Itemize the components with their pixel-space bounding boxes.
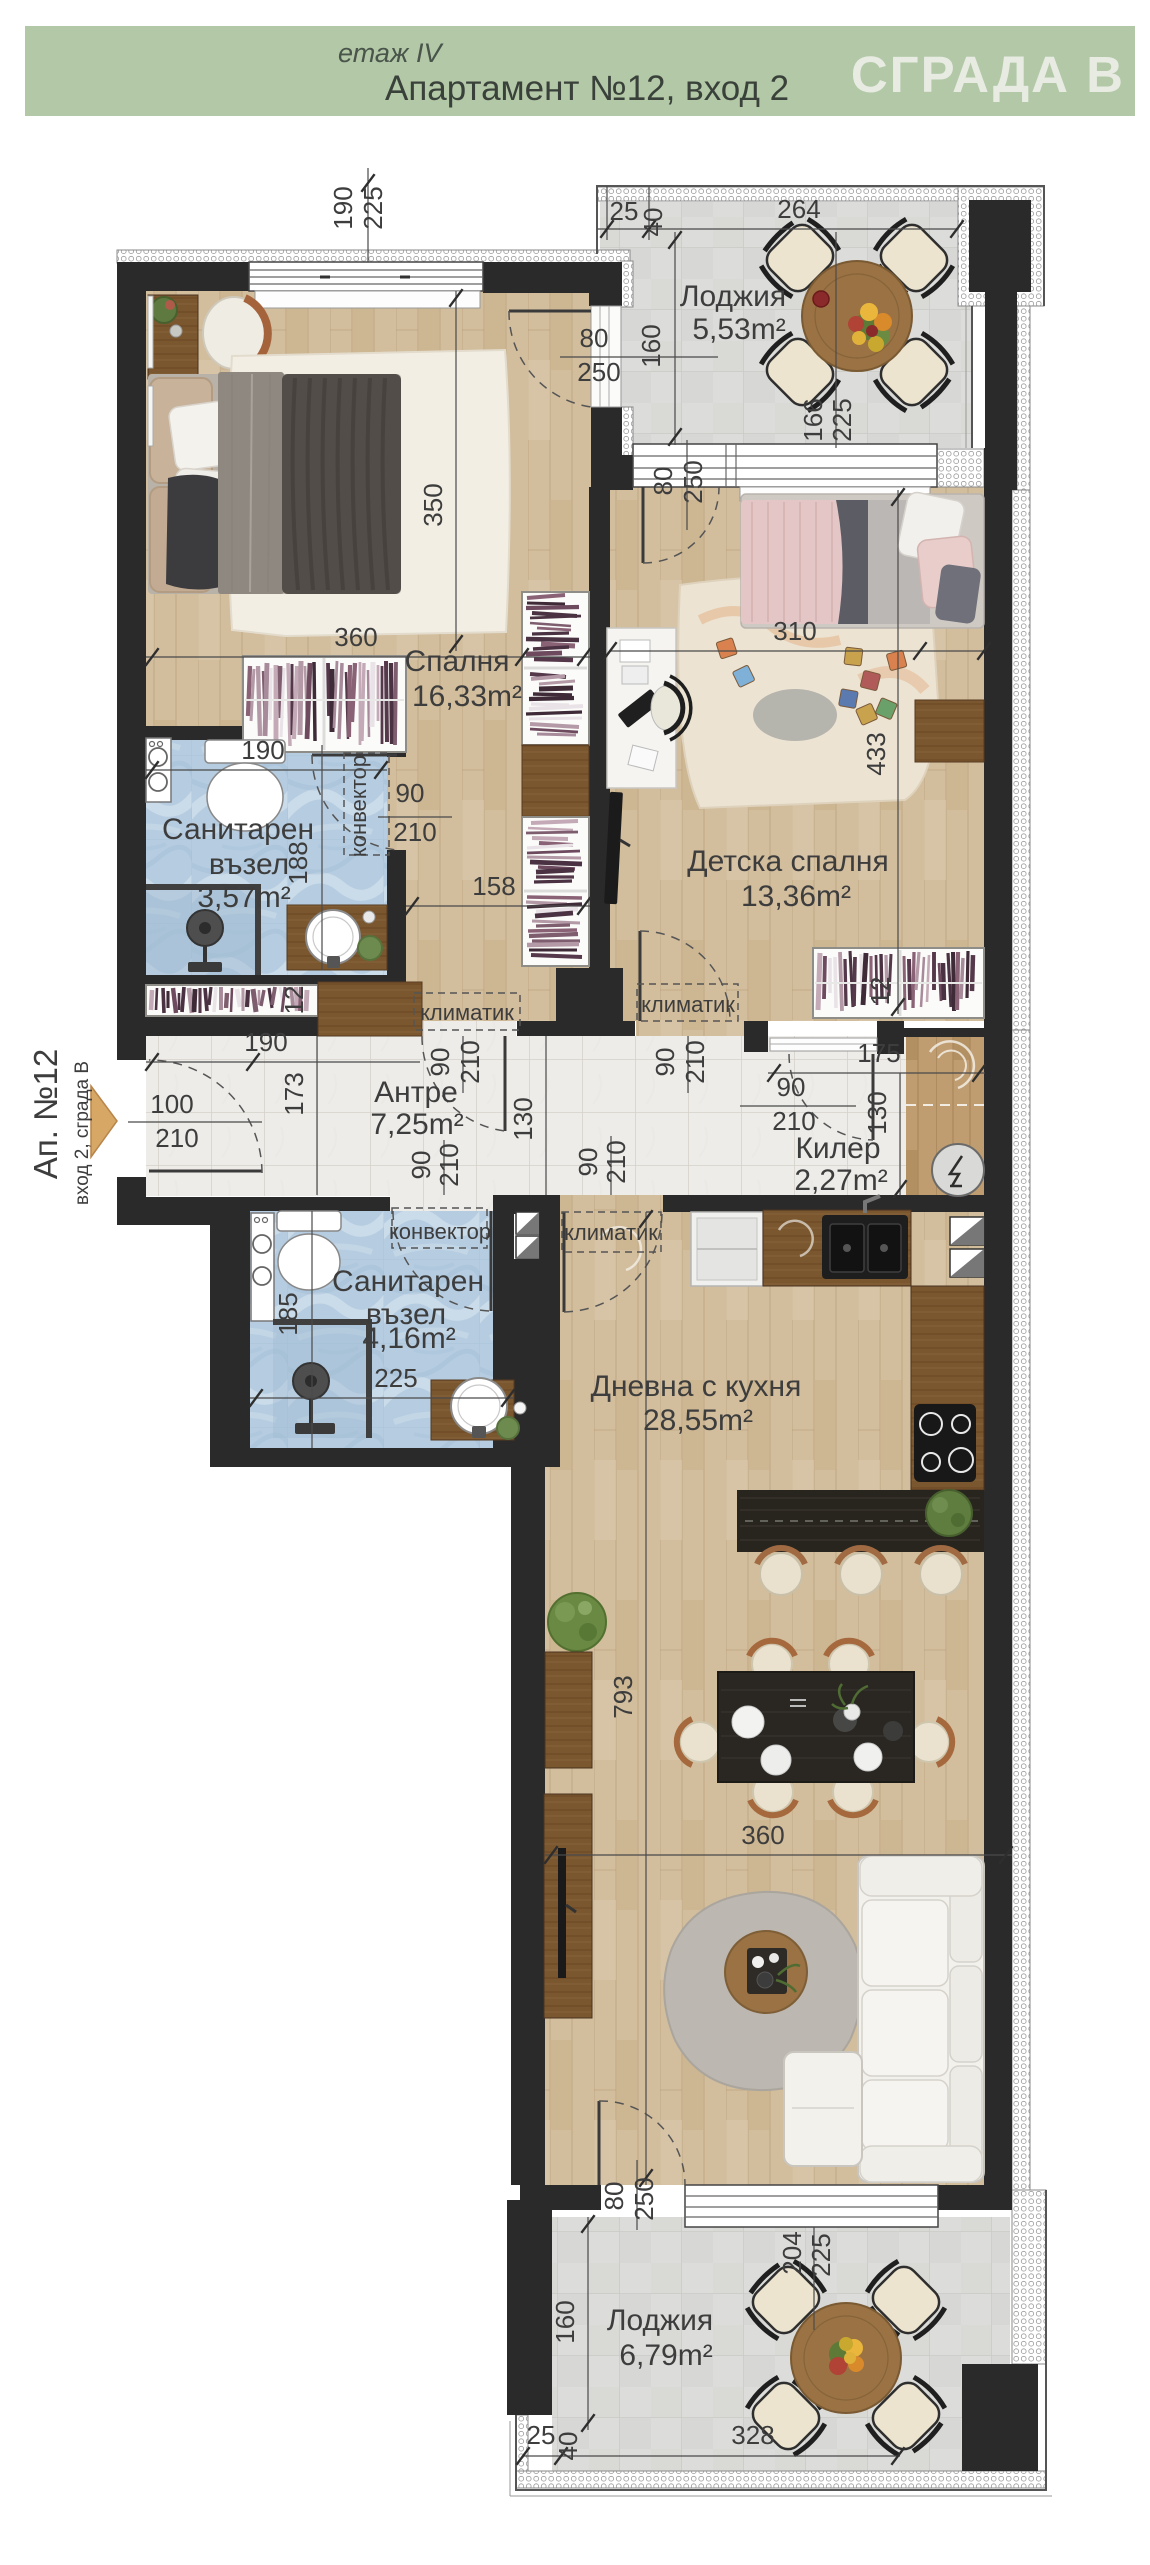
svg-text:климатик: климатик <box>420 1000 514 1025</box>
svg-text:80: 80 <box>648 467 678 496</box>
svg-text:40: 40 <box>553 2432 583 2461</box>
svg-text:5,53m²: 5,53m² <box>692 313 785 346</box>
svg-text:328: 328 <box>731 2420 774 2450</box>
svg-text:СГРАДА В: СГРАДА В <box>851 46 1125 103</box>
svg-text:204: 204 <box>777 2231 807 2274</box>
svg-text:185: 185 <box>273 1292 303 1335</box>
svg-text:130: 130 <box>508 1097 538 1140</box>
svg-text:28,55m²: 28,55m² <box>643 1404 753 1437</box>
svg-text:210: 210 <box>601 1140 631 1183</box>
svg-text:80: 80 <box>599 2182 629 2211</box>
svg-text:210: 210 <box>680 1040 710 1083</box>
svg-text:360: 360 <box>741 1820 784 1850</box>
svg-text:13,36m²: 13,36m² <box>741 880 851 913</box>
svg-text:190: 190 <box>244 1027 287 1057</box>
svg-text:16,33m²: 16,33m² <box>412 680 522 713</box>
svg-text:Санитарен: Санитарен <box>332 1265 484 1298</box>
svg-text:350: 350 <box>418 483 448 526</box>
svg-text:166: 166 <box>798 398 828 441</box>
svg-text:25: 25 <box>610 196 639 226</box>
svg-text:130: 130 <box>862 1091 892 1134</box>
svg-text:225: 225 <box>358 186 388 229</box>
svg-text:210: 210 <box>434 1143 464 1186</box>
svg-text:климатик: климатик <box>564 1220 658 1245</box>
svg-text:264: 264 <box>777 194 820 224</box>
svg-text:6,79m²: 6,79m² <box>619 2339 712 2372</box>
svg-text:90: 90 <box>777 1072 806 1102</box>
svg-text:Детска спалня: Детска спалня <box>687 845 888 878</box>
svg-text:12: 12 <box>279 986 309 1015</box>
svg-text:вход 2, сграда В: вход 2, сграда В <box>72 1061 93 1205</box>
svg-text:25: 25 <box>527 2420 556 2450</box>
svg-text:360: 360 <box>334 622 377 652</box>
svg-text:225: 225 <box>827 398 857 441</box>
svg-text:Лоджия: Лоджия <box>680 280 786 313</box>
svg-text:100: 100 <box>150 1089 193 1119</box>
svg-text:Ап. №12: Ап. №12 <box>27 1049 64 1179</box>
svg-text:90: 90 <box>425 1048 455 1077</box>
svg-text:етаж IV: етаж IV <box>338 38 444 68</box>
svg-text:Антре: Антре <box>374 1076 458 1109</box>
svg-text:Дневна с кухня: Дневна с кухня <box>591 1370 802 1403</box>
svg-text:2,27m²: 2,27m² <box>794 1164 887 1197</box>
svg-text:160: 160 <box>636 324 666 367</box>
svg-text:250: 250 <box>629 2177 659 2220</box>
svg-text:Апартамент №12, вход 2: Апартамент №12, вход 2 <box>385 69 789 108</box>
svg-text:90: 90 <box>650 1048 680 1077</box>
svg-text:Килер: Килер <box>795 1132 880 1165</box>
svg-text:90: 90 <box>573 1148 603 1177</box>
svg-text:173: 173 <box>279 1072 309 1115</box>
svg-text:175: 175 <box>857 1038 900 1068</box>
svg-text:климатик: климатик <box>641 992 735 1017</box>
svg-text:190: 190 <box>241 735 284 765</box>
svg-text:158: 158 <box>472 871 515 901</box>
svg-text:Спалня: Спалня <box>405 645 510 678</box>
svg-text:250: 250 <box>577 357 620 387</box>
svg-text:190: 190 <box>328 186 358 229</box>
svg-text:210: 210 <box>393 817 436 847</box>
svg-text:210: 210 <box>455 1040 485 1083</box>
svg-text:90: 90 <box>406 1151 436 1180</box>
svg-text:310: 310 <box>773 616 816 646</box>
svg-text:възел: възел <box>209 848 289 881</box>
svg-text:80: 80 <box>580 323 609 353</box>
svg-text:793: 793 <box>608 1675 638 1718</box>
svg-text:210: 210 <box>155 1123 198 1153</box>
svg-text:Санитарен: Санитарен <box>162 813 314 846</box>
svg-text:7,25m²: 7,25m² <box>370 1108 463 1141</box>
svg-text:225: 225 <box>806 2233 836 2276</box>
svg-text:90: 90 <box>396 778 425 808</box>
svg-text:конвектор: конвектор <box>389 1219 491 1244</box>
svg-text:Лоджия: Лоджия <box>607 2304 713 2337</box>
svg-text:4,16m²: 4,16m² <box>362 1322 455 1355</box>
svg-text:160: 160 <box>550 2300 580 2343</box>
svg-text:225: 225 <box>374 1363 417 1393</box>
svg-text:12: 12 <box>865 977 895 1006</box>
svg-text:250: 250 <box>678 460 708 503</box>
svg-text:40: 40 <box>638 208 668 237</box>
svg-text:433: 433 <box>861 732 891 775</box>
svg-text:3,57m²: 3,57m² <box>197 881 290 914</box>
